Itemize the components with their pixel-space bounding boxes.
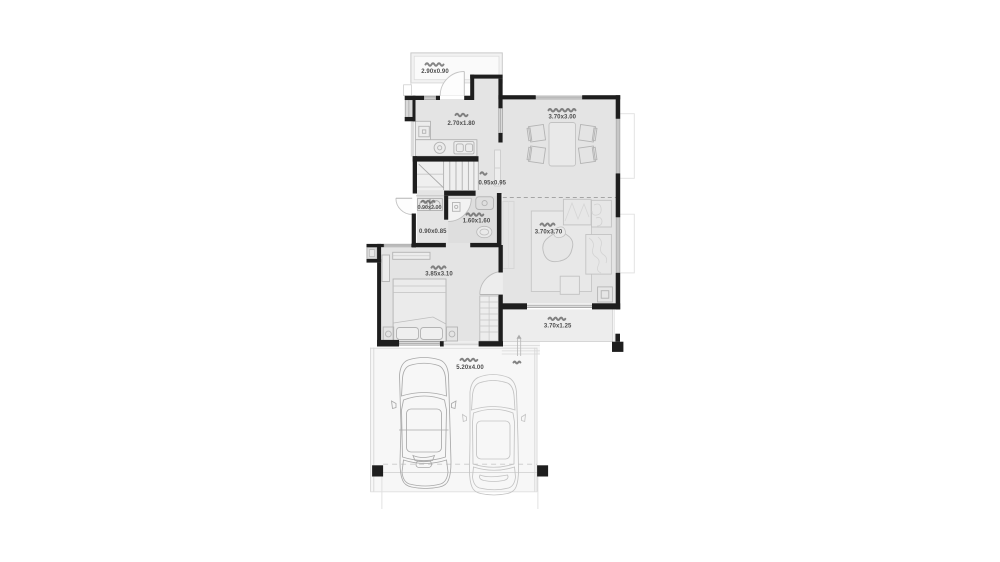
svg-text:3.70x1.25: 3.70x1.25: [544, 323, 572, 329]
svg-text:0.90x2.00: 0.90x2.00: [418, 205, 442, 211]
svg-text:0.90x0.85: 0.90x0.85: [419, 229, 447, 235]
svg-text:5.20x4.00: 5.20x4.00: [456, 365, 484, 371]
svg-text:1.60x1.60: 1.60x1.60: [463, 218, 491, 224]
svg-text:2.90x0.90: 2.90x0.90: [421, 69, 449, 75]
svg-text:3.70x3.70: 3.70x3.70: [535, 230, 563, 236]
svg-text:2.70x1.80: 2.70x1.80: [448, 121, 476, 127]
svg-text:3.70x3.00: 3.70x3.00: [549, 114, 577, 120]
svg-text:3.85x3.10: 3.85x3.10: [425, 271, 453, 277]
svg-text:0.95x0.95: 0.95x0.95: [479, 180, 507, 186]
